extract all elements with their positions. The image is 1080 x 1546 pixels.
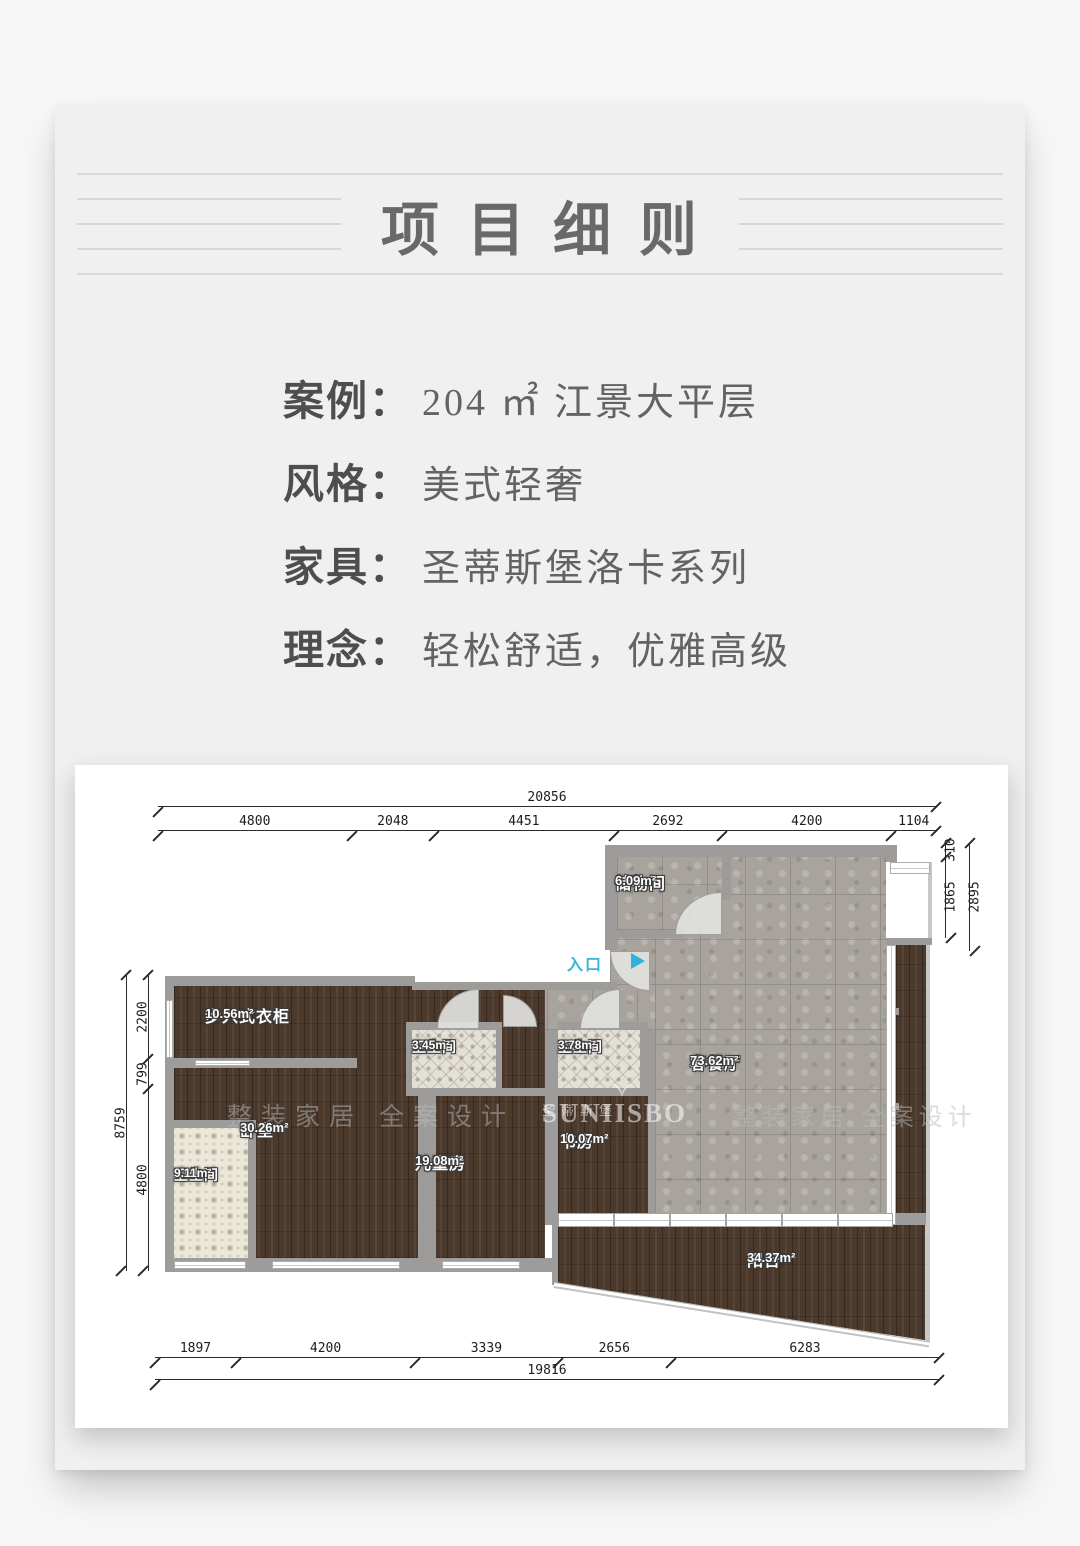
dim-segment: 6283 [671, 1342, 939, 1362]
wall [496, 1030, 502, 1088]
project-info: 案例： 204 ㎡ 江景大平层 风格： 美式轻奢 家具： 圣蒂斯堡洛卡系列 理念… [283, 367, 791, 699]
wall [640, 1030, 648, 1088]
dim-right-total: 2895 [965, 843, 985, 951]
wall [552, 1225, 558, 1285]
dim-segment: 4200 [722, 815, 891, 835]
laurel-icon [84, 1081, 110, 1098]
entrance-arrow-icon [631, 953, 645, 969]
dim-left-total: 8759 [111, 975, 131, 1271]
window [166, 1000, 173, 1058]
wall [406, 1088, 545, 1096]
wall [886, 845, 897, 862]
brand-name-cn: 圣蒂斯堡 [542, 1100, 618, 1119]
room-area: 10.07m² [560, 1131, 608, 1146]
wall [886, 938, 932, 945]
room-area: 10.56m² [205, 1006, 253, 1021]
dim-bottom-segments: 1897 4200 3339 2656 6283 [155, 1342, 939, 1362]
window-row [558, 1213, 893, 1227]
watermark-text: 整装家居 全案设计 [733, 1097, 977, 1132]
dim-segment: 2895 [965, 843, 985, 951]
dim-segment: 4800 [158, 815, 352, 835]
dim-left-segments: 2200 799 4800 [133, 975, 153, 1271]
dim-segment: 1104 [891, 815, 936, 835]
dim-segment: 8759 [111, 975, 131, 1271]
dim-bottom-total: 19816 [155, 1364, 939, 1384]
wall [722, 850, 731, 900]
info-row-furniture: 家具： 圣蒂斯堡洛卡系列 [283, 533, 791, 593]
laurel-icon [609, 1081, 635, 1098]
brand-name-cn: 圣蒂斯堡 [75, 1100, 93, 1119]
dim-segment: 4200 [236, 1342, 415, 1362]
dim-segment: 4800 [133, 1089, 153, 1271]
info-label: 风格： [283, 450, 412, 510]
decorative-line [77, 273, 1003, 275]
info-value: 圣蒂斯堡洛卡系列 [422, 537, 750, 592]
info-row-concept: 理念： 轻松舒适，优雅高级 [283, 616, 791, 676]
dim-segment: 19816 [155, 1364, 939, 1384]
dim-right-segments: 310 1865 [941, 843, 961, 938]
wall [925, 1225, 930, 1343]
info-label: 理念： [283, 616, 412, 676]
window [272, 1261, 400, 1269]
floor-plan: 入口 储物间 6.09m² 客餐厅 73.62m² 步入式衣柜 10.56m² … [75, 765, 1008, 1428]
room-area: 3.78m² [558, 1038, 596, 1052]
project-card: 项目细则 案例： 204 ㎡ 江景大平层 风格： 美式轻奢 家具： 圣蒂斯堡洛卡… [55, 105, 1025, 1470]
room-area: 73.62m² [690, 1053, 738, 1068]
wall [926, 945, 930, 1225]
brand-watermark: SUNIISBO 圣蒂斯堡 [542, 1081, 702, 1098]
wall [165, 976, 415, 986]
dim-segment: 2200 [133, 975, 153, 1059]
dim-segment: 20856 [158, 791, 936, 811]
bay-window-floor [896, 945, 926, 1225]
wall [412, 982, 605, 990]
dim-segment: 2656 [558, 1342, 671, 1362]
window [174, 1261, 246, 1269]
dim-segment: 1897 [155, 1342, 236, 1362]
room-area: 3.45m² [412, 1038, 450, 1052]
dim-segment: 1865 [941, 857, 961, 938]
info-label: 案例： [283, 367, 412, 427]
window-sill [195, 1060, 250, 1066]
bathroom-911-floor [174, 1128, 248, 1258]
info-value: 轻松舒适，优雅高级 [422, 620, 791, 675]
dim-top-segments: 4800 2048 4451 2692 4200 1104 [158, 815, 936, 835]
decorative-line [77, 173, 1003, 175]
dim-top-total: 20856 [158, 791, 936, 811]
window [886, 945, 896, 1225]
info-label: 家具： [283, 533, 412, 593]
wall [615, 930, 683, 938]
window [890, 862, 930, 874]
wall [605, 845, 897, 857]
info-value: 204 ㎡ 江景大平层 [422, 371, 759, 426]
info-row-case: 案例： 204 ㎡ 江景大平层 [283, 367, 791, 427]
dim-segment: 3339 [415, 1342, 557, 1362]
dim-segment: 4451 [434, 815, 613, 835]
info-row-style: 风格： 美式轻奢 [283, 450, 791, 510]
info-value: 美式轻奢 [422, 454, 586, 509]
dim-segment: 2048 [352, 815, 435, 835]
entrance-label: 入口 [567, 951, 603, 975]
dim-segment: 2692 [614, 815, 723, 835]
page-title: 项目细则 [55, 183, 1025, 267]
balcony-floor [558, 1225, 928, 1343]
room-area: 9.11m² [174, 1166, 211, 1180]
dim-segment: 310 [941, 843, 961, 857]
room-area: 30.26m² [240, 1120, 288, 1135]
room-area: 19.08m² [415, 1153, 463, 1168]
room-area: 6.09m² [615, 873, 656, 888]
room-area: 34.37m² [747, 1250, 795, 1265]
window [442, 1261, 520, 1269]
